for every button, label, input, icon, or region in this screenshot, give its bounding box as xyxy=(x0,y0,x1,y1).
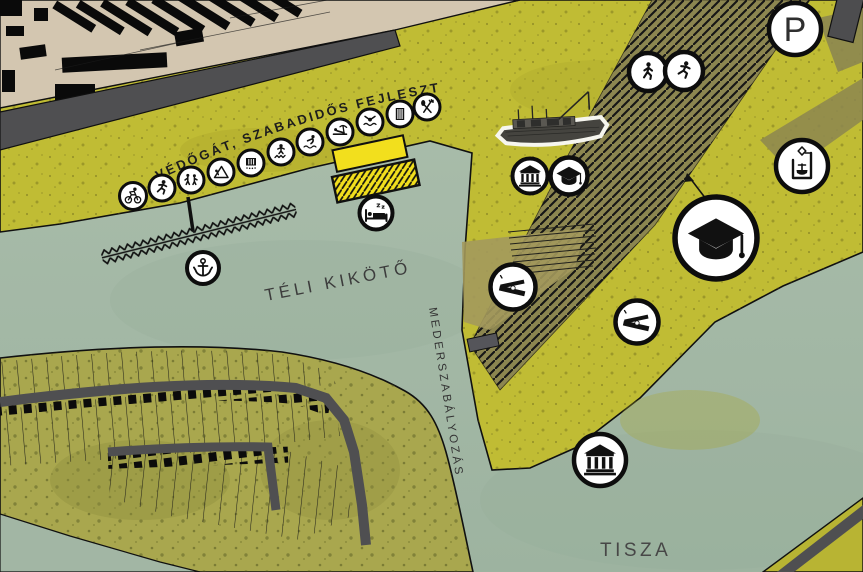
river-label: TISZA xyxy=(600,540,671,561)
container-pavilion-icon xyxy=(387,101,413,127)
hotel-boat-bed-icon xyxy=(360,197,393,230)
harbor-master-plan-map: VÉDŐGÁT, SZABADIDŐS FEJLESZTÉS TÉLI KIKÖ… xyxy=(0,0,863,572)
parking-letter: P xyxy=(784,11,807,49)
museum-icon xyxy=(513,159,548,194)
restaurant-icon xyxy=(414,94,440,120)
slipway-icon-1 xyxy=(491,265,536,310)
museum-icon-south xyxy=(574,434,626,486)
cycling-icon xyxy=(120,183,147,210)
swimming-icon xyxy=(357,109,383,135)
climbing-frame-icon xyxy=(208,159,234,185)
boat-lift-icon xyxy=(776,140,828,192)
event-container-icon xyxy=(238,150,264,176)
running-icon xyxy=(149,175,175,201)
walking-icon xyxy=(629,53,667,91)
map-canvas: VÉDŐGÁT, SZABADIDŐS FEJLESZTÉS TÉLI KIKÖ… xyxy=(0,0,863,572)
running-icon-2 xyxy=(665,52,703,90)
anchor-icon xyxy=(187,252,219,284)
beach-rest-icon xyxy=(327,119,353,145)
water-jump-icon xyxy=(297,129,323,155)
parking-icon: P xyxy=(769,3,821,55)
trampoline-icon xyxy=(268,139,294,165)
outdoor-fitness-icon xyxy=(178,167,204,193)
education-cap-icon xyxy=(551,158,588,195)
education-hub-cap-icon xyxy=(675,197,757,279)
slipway-icon-2 xyxy=(616,301,659,344)
